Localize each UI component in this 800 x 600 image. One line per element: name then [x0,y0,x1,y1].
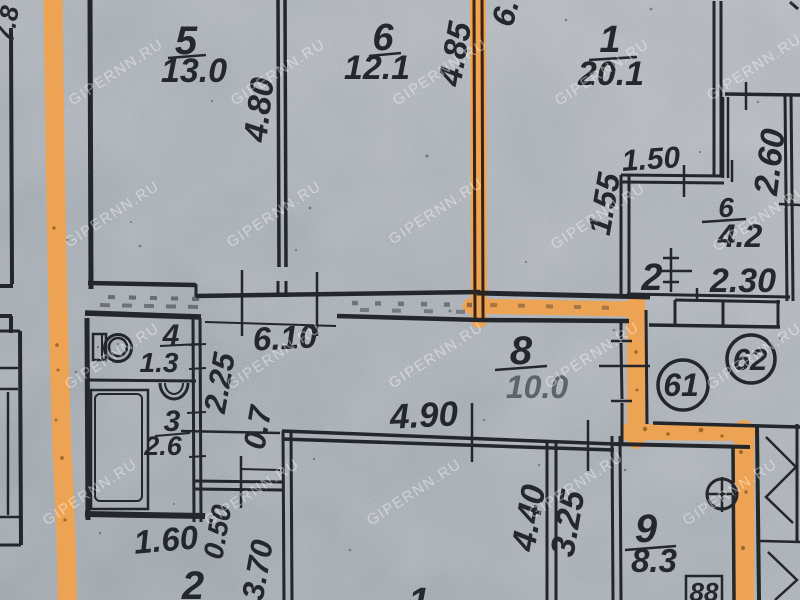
svg-text:2: 2 [181,564,204,600]
svg-text:1.50: 1.50 [621,141,682,178]
svg-text:1.3: 1.3 [140,347,179,378]
svg-text:1: 1 [408,581,429,600]
svg-text:13.0: 13.0 [161,52,227,90]
svg-text:2.6: 2.6 [143,431,183,461]
svg-text:4.90: 4.90 [388,394,460,437]
svg-text:88: 88 [690,577,719,600]
svg-text:2: 2 [640,257,662,299]
svg-text:12.1: 12.1 [344,49,410,87]
svg-text:61: 61 [663,367,699,403]
svg-text:2.30: 2.30 [709,262,776,300]
svg-text:1.60: 1.60 [132,518,200,561]
svg-text:8.3: 8.3 [631,542,677,579]
svg-text:2.60: 2.60 [747,127,793,198]
